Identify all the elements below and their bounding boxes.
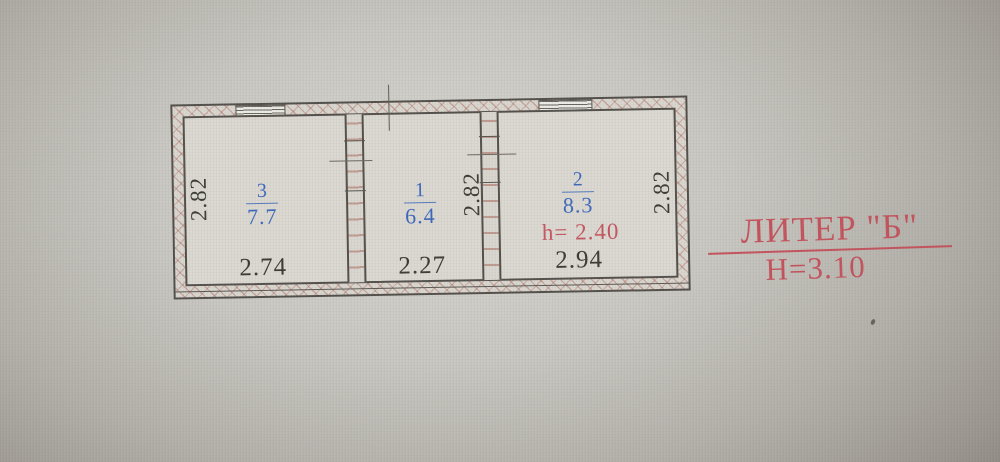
room-number: 3 xyxy=(246,181,278,205)
section-mark-line xyxy=(388,85,390,131)
room-number: 2 xyxy=(562,169,594,193)
photo-speck xyxy=(870,318,876,325)
partition-tick xyxy=(344,140,365,141)
room-1-label: 1 6.4 xyxy=(388,180,453,228)
room-2-label: 2 8.3 xyxy=(546,169,611,217)
ceiling-height-label: h= 2.40 xyxy=(522,218,638,246)
width-dimension: 2.27 xyxy=(382,251,462,280)
height-dimension: 2.82 xyxy=(458,159,483,229)
building-annotation: ЛИТЕР "Б" Н=3.10 xyxy=(703,207,957,289)
room-3-label: 3 7.7 xyxy=(230,180,295,228)
height-dimension: 2.82 xyxy=(185,164,210,234)
floor-plan: 3 7.7 1 6.4 2 8.3 h= 2.40 2.74 2.27 2.94… xyxy=(170,96,690,300)
room-area: 8.3 xyxy=(546,194,610,217)
width-dimension: 2.74 xyxy=(223,253,303,282)
width-dimension: 2.94 xyxy=(539,246,619,275)
partition-wall xyxy=(345,114,367,282)
partition-tick xyxy=(479,136,500,137)
partition-tick xyxy=(345,190,366,191)
height-dimension: 2.82 xyxy=(648,157,673,227)
room-number: 1 xyxy=(404,180,436,204)
window-symbol xyxy=(538,99,592,111)
window-symbol xyxy=(235,105,285,117)
screenshot-photo: 3 7.7 1 6.4 2 8.3 h= 2.40 2.74 2.27 2.94… xyxy=(0,0,1000,462)
building-height: Н=3.10 xyxy=(704,248,927,289)
liter-title: ЛИТЕР "Б" xyxy=(703,207,956,252)
room-area: 7.7 xyxy=(230,205,294,228)
room-area: 6.4 xyxy=(388,205,452,228)
